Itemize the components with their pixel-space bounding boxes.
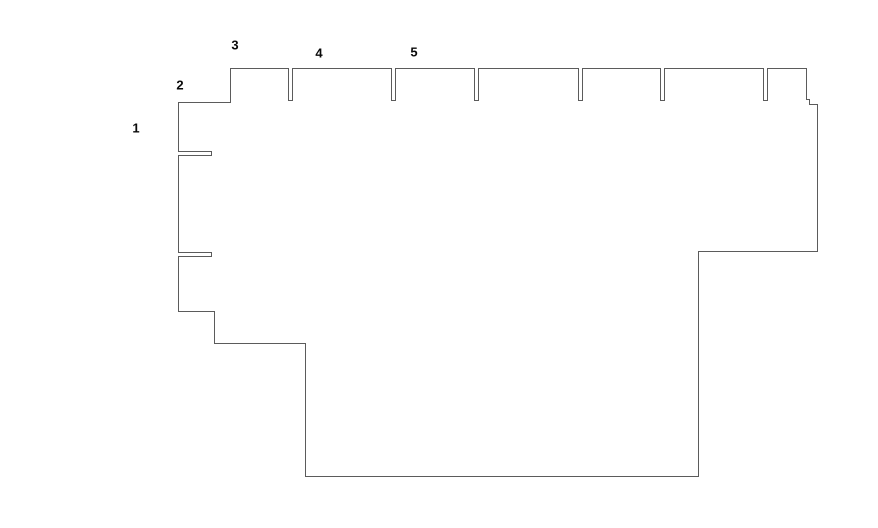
wall-label-5: 5 <box>410 46 417 59</box>
drawing-canvas: 1 2 3 4 5 <box>0 0 878 528</box>
floor-plan-svg <box>0 0 878 528</box>
wall-label-2: 2 <box>176 79 183 92</box>
wall-label-4: 4 <box>315 47 322 60</box>
floor-plan-outline <box>179 69 818 477</box>
wall-label-1: 1 <box>132 122 139 135</box>
wall-label-3: 3 <box>231 39 238 52</box>
